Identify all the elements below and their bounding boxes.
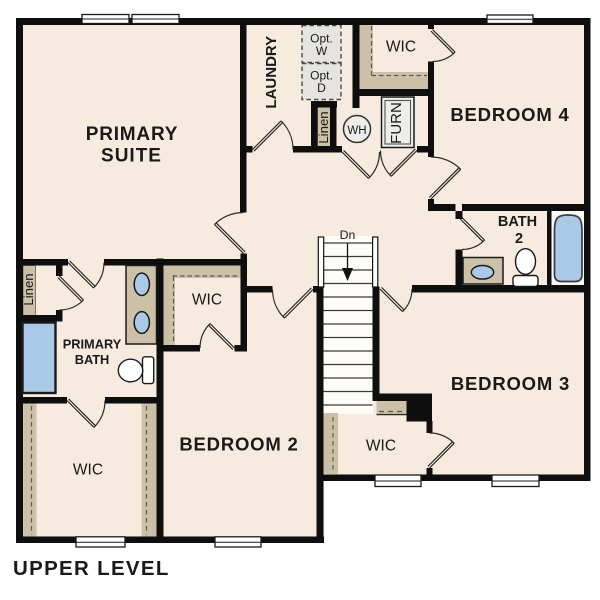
svg-text:BATH: BATH — [498, 214, 537, 230]
svg-text:WIC: WIC — [386, 39, 416, 56]
svg-text:BEDROOM 3: BEDROOM 3 — [451, 373, 570, 394]
svg-text:WIC: WIC — [366, 438, 396, 455]
svg-text:Dn: Dn — [340, 228, 356, 242]
svg-text:WH: WH — [347, 125, 366, 137]
svg-text:Linen: Linen — [21, 273, 36, 305]
svg-text:WIC: WIC — [73, 462, 103, 479]
svg-text:PRIMARY: PRIMARY — [86, 124, 179, 145]
svg-text:LAUNDRY: LAUNDRY — [263, 36, 280, 109]
svg-text:SUITE: SUITE — [101, 146, 162, 167]
svg-text:BATH: BATH — [75, 352, 110, 367]
svg-text:Linen: Linen — [316, 111, 331, 143]
svg-text:UPPER LEVEL: UPPER LEVEL — [13, 557, 170, 580]
svg-text:PRIMARY: PRIMARY — [63, 337, 122, 352]
svg-text:BEDROOM 2: BEDROOM 2 — [179, 434, 298, 455]
svg-text:W: W — [316, 44, 328, 58]
svg-text:2: 2 — [515, 231, 523, 247]
svg-text:BEDROOM 4: BEDROOM 4 — [450, 104, 569, 125]
svg-text:D: D — [317, 81, 326, 95]
svg-text:FURN: FURN — [388, 102, 405, 144]
svg-text:WIC: WIC — [192, 292, 222, 309]
